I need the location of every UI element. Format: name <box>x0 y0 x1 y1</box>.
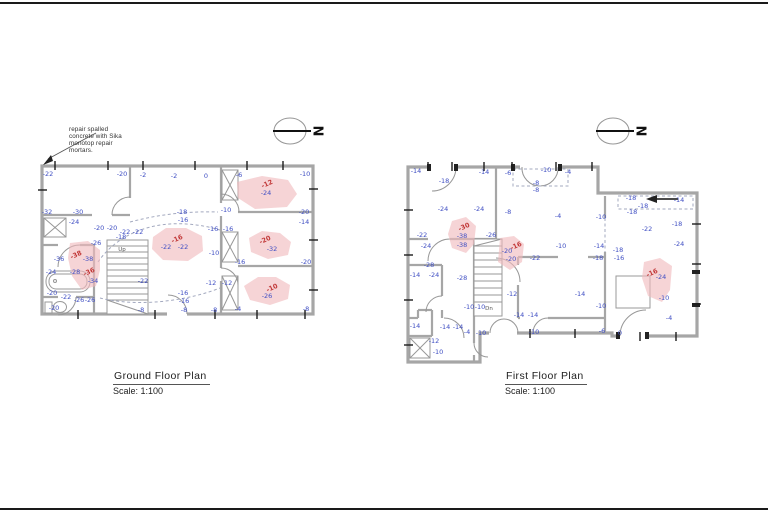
first-floor-title: First Floor Plan <box>505 370 587 385</box>
damage-zone <box>152 228 203 261</box>
damage-zone <box>244 277 290 305</box>
north-arrow: N <box>596 118 648 144</box>
ground-floor-scale: Scale: 1:100 <box>113 386 210 396</box>
drawing-sheet: Up <box>0 0 768 512</box>
first-floor-scale: Scale: 1:100 <box>505 386 587 396</box>
annotation-line: concrete with Sika <box>69 133 122 140</box>
annotation-line: monotop repair <box>69 140 122 147</box>
north-arrow: N <box>273 118 325 144</box>
floor-plan-drawing: Up <box>0 0 768 512</box>
annotation-line: mortars. <box>69 147 122 154</box>
ground-floor-title-block: Ground Floor Plan Scale: 1:100 <box>113 366 210 396</box>
first-floor-title-block: First Floor Plan Scale: 1:100 <box>505 366 587 396</box>
ground-floor-title: Ground Floor Plan <box>113 370 210 385</box>
ground-stairs-label: Up <box>118 247 126 253</box>
damage-zone <box>237 176 297 209</box>
first-stairs-label: Dn <box>485 306 493 312</box>
annotation-arrowhead <box>43 155 53 165</box>
north-letter: N <box>633 126 648 137</box>
repair-annotation: repair spalled concrete with Sika monoto… <box>69 126 122 154</box>
ground-stairs <box>107 240 148 314</box>
annotation-line: repair spalled <box>69 126 122 133</box>
first-stairs <box>474 239 502 316</box>
damage-zone <box>448 217 476 253</box>
shaft-box <box>410 338 430 358</box>
toilet <box>45 302 67 314</box>
north-letter: N <box>310 126 325 137</box>
damage-zone <box>249 231 291 259</box>
first-floor-plan: Dn <box>404 118 701 362</box>
